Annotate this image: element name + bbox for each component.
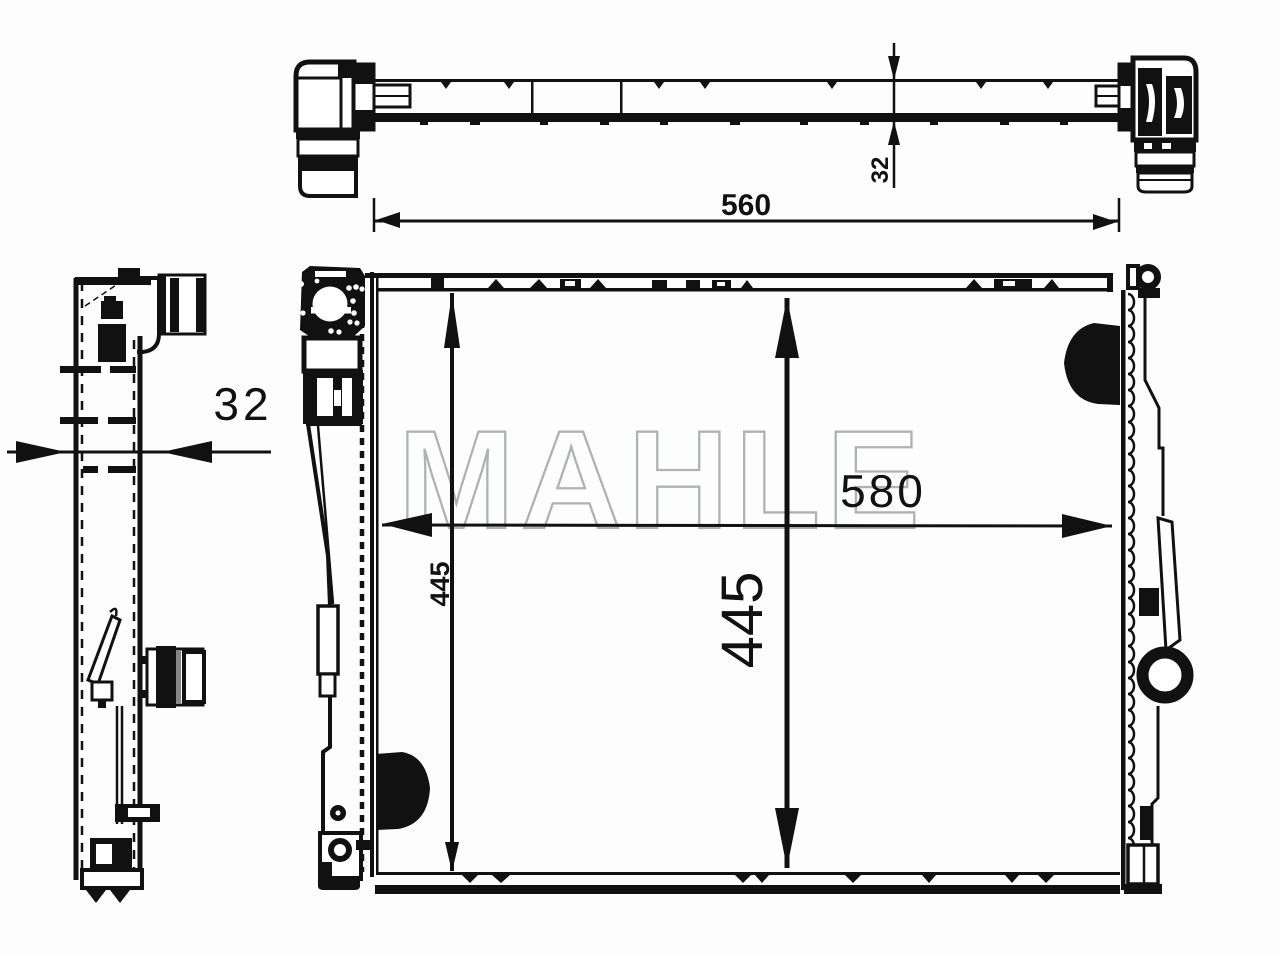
svg-text:445: 445: [425, 561, 455, 606]
svg-text:445: 445: [710, 572, 775, 669]
svg-text:32: 32: [213, 378, 272, 430]
svg-text:580: 580: [840, 465, 926, 517]
svg-text:560: 560: [721, 189, 771, 222]
svg-text:32: 32: [867, 157, 894, 184]
